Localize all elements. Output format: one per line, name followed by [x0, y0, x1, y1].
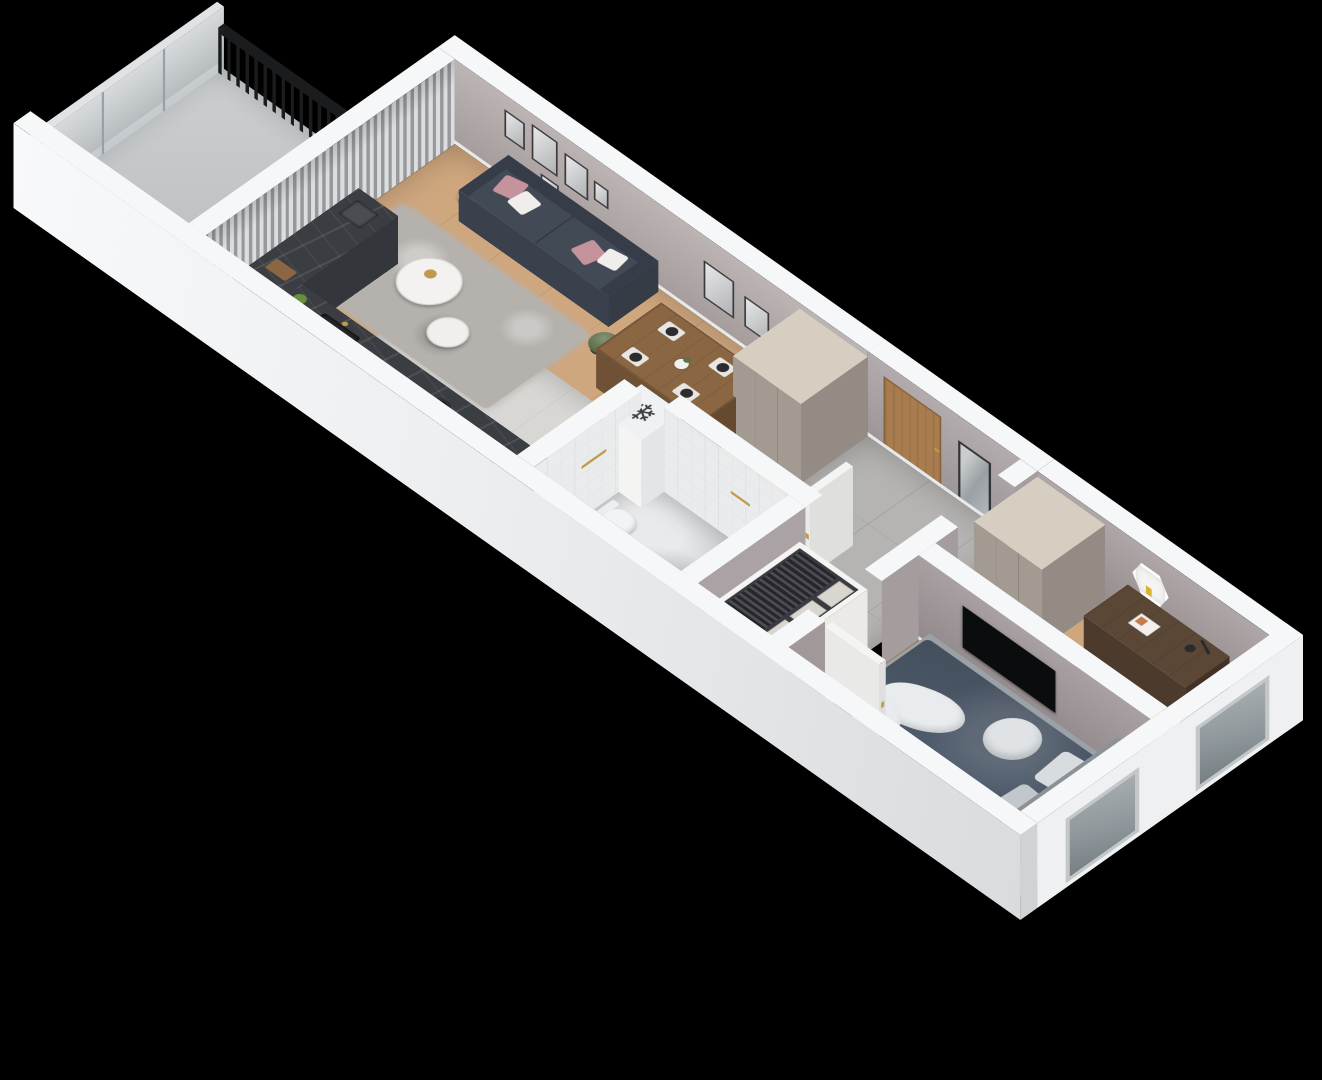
- apartment-plan: ❄: [2, 0, 1303, 920]
- open-book: [1128, 613, 1161, 636]
- bedroom-door-handle: [881, 701, 884, 709]
- sofa-seat-split: [535, 216, 573, 243]
- south-outer-wall-side: [1020, 823, 1037, 920]
- picture-frame-1: [504, 109, 524, 151]
- floor-plan-stage: ❄: [0, 0, 1322, 1080]
- picture-frame-4: [594, 180, 609, 210]
- picture-frame-3: [564, 153, 588, 201]
- picture-frame-6: [704, 260, 735, 319]
- desk-lamp-arm: [1200, 640, 1210, 655]
- bathroom-door-handle: [805, 532, 808, 539]
- desk-lamp-base: [1182, 643, 1198, 654]
- bath-gold-detail: [731, 491, 750, 507]
- coffee-machine: [338, 200, 379, 229]
- counter-board: [265, 258, 298, 281]
- picture-frame-2: [532, 124, 558, 177]
- towel-bar-gold: [581, 449, 606, 469]
